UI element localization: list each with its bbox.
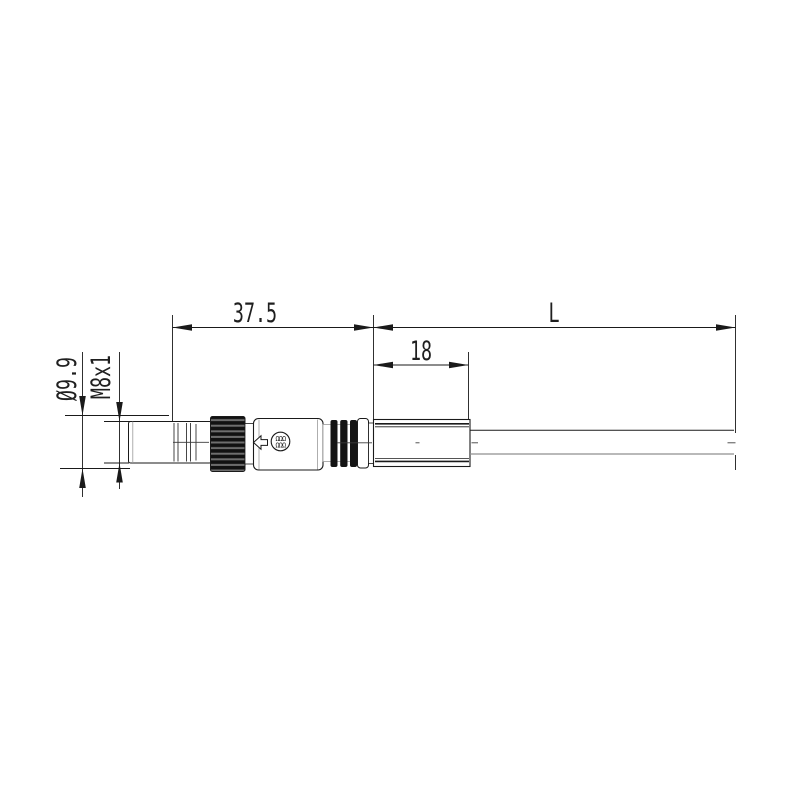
dimension-labels: 37.5 L 18 Ø9.9 M8x1: [53, 299, 560, 401]
technical-drawing-page: 37.5 L 18 Ø9.9 M8x1 ΩΩΩ: [0, 0, 800, 800]
dimension-lines: [83, 328, 736, 498]
arrow-icon: [79, 469, 86, 489]
arrow-icon: [116, 402, 123, 422]
brand-logo-row: ΩΩΩ: [275, 442, 286, 450]
arrow-icon: [374, 324, 394, 331]
dimension-label-connector-length: 37.5: [233, 299, 277, 329]
dimension-label-cable-length: L: [548, 299, 559, 329]
drawing-root: 37.5 L 18 Ø9.9 M8x1 ΩΩΩ: [53, 299, 736, 497]
dimension-label-boot-length: 18: [410, 337, 432, 367]
arrow-icon: [173, 324, 193, 331]
connector-dimension-drawing: 37.5 L 18 Ø9.9 M8x1 ΩΩΩ: [0, 0, 800, 800]
brand-logo-icon: ΩΩΩ ΩΩΩ: [275, 435, 286, 450]
rib: [350, 420, 357, 467]
rib: [331, 420, 338, 467]
dimension-label-outer-diameter: Ø9.9: [53, 357, 83, 401]
strain-relief-ribs: [331, 420, 358, 467]
dimension-label-thread-size: M8x1: [87, 355, 117, 399]
nut-housing-neck: [245, 424, 254, 465]
arrow-icon: [449, 362, 469, 369]
connector: ΩΩΩ ΩΩΩ: [129, 417, 736, 472]
knurled-coupling-nut: [211, 417, 246, 472]
arrow-icon: [354, 324, 374, 331]
rib: [340, 420, 347, 467]
arrow-icon: [716, 324, 736, 331]
arrow-icon: [374, 362, 394, 369]
arrow-icon: [116, 463, 123, 483]
